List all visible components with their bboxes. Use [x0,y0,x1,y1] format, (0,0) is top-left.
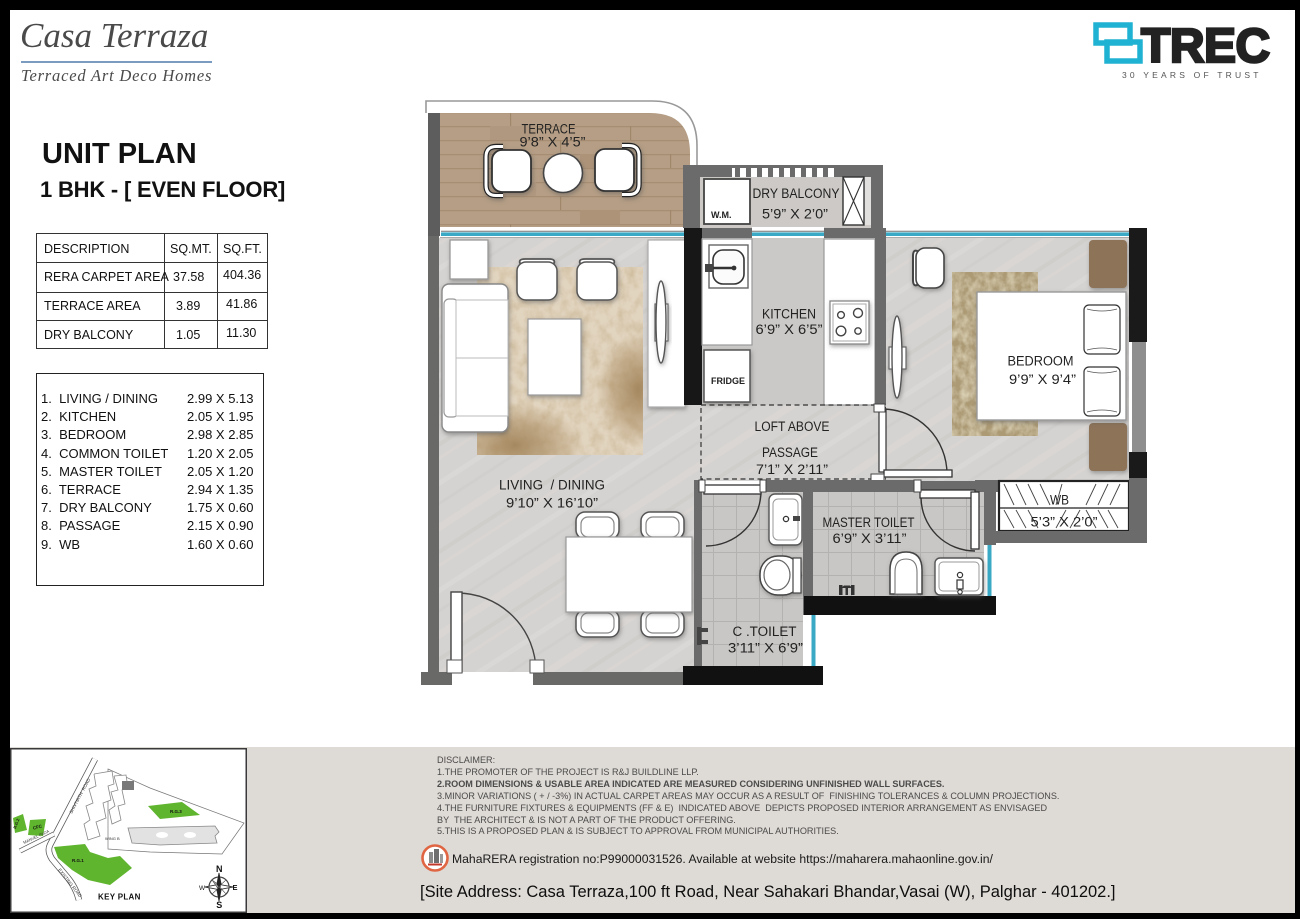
svg-text:6’9” X 6’5”: 6’9” X 6’5” [756,322,823,337]
svg-text:KITCHEN: KITCHEN [762,307,816,322]
svg-text:MASTER TOILET: MASTER TOILET [823,515,915,530]
svg-text:7’1” X 2’11”: 7’1” X 2’11” [756,462,828,477]
svg-text:FRIDGE: FRIDGE [711,376,745,386]
svg-text:R.G.1: R.G.1 [72,858,84,863]
svg-text:DRY BALCONY: DRY BALCONY [753,186,840,201]
svg-text:9’10” X 16’10”: 9’10” X 16’10” [506,496,598,511]
svg-text:PASSAGE: PASSAGE [762,445,818,460]
svg-text:WING B: WING B [105,836,120,841]
svg-text:6’9” X 3’11”: 6’9” X 3’11” [833,531,907,546]
svg-text:9’9” X 9’4”: 9’9” X 9’4” [1009,372,1076,387]
svg-text:KEY PLAN: KEY PLAN [98,893,141,902]
svg-text:S: S [216,900,222,910]
svg-text:WB: WB [1050,493,1069,508]
svg-text:W.M.: W.M. [711,210,732,220]
svg-text:LOFT ABOVE: LOFT ABOVE [755,419,830,434]
svg-text:5’9” X 2’0”: 5’9” X 2’0” [762,207,828,222]
svg-text:N: N [216,864,223,874]
svg-text:3’11” X 6’9”: 3’11” X 6’9” [728,641,803,656]
svg-text:9’8” X 4’5”: 9’8” X 4’5” [520,135,586,150]
svg-text:E: E [233,883,238,892]
svg-text:BEDROOM: BEDROOM [1008,354,1074,369]
svg-text:W: W [199,885,206,892]
svg-text:LIVING / DINING: LIVING / DINING [499,478,605,493]
svg-text:5’3” X 2’0”: 5’3” X 2’0” [1031,515,1098,530]
svg-text:C .TOILET: C .TOILET [733,624,797,639]
svg-text:R.G.3: R.G.3 [170,809,182,814]
